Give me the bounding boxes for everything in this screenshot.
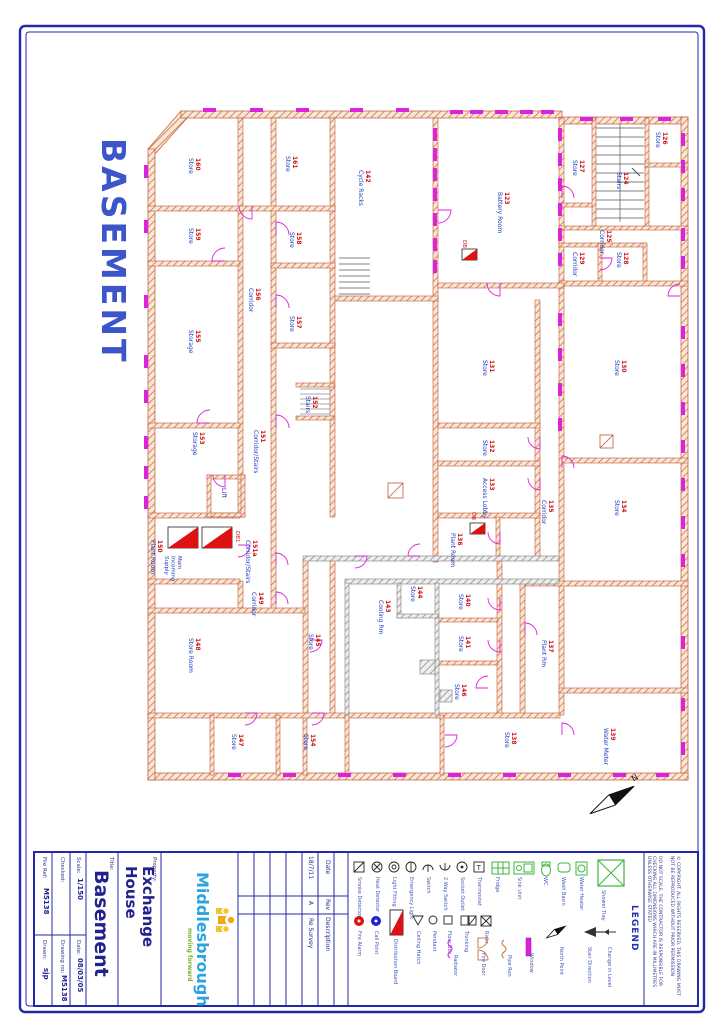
door-swing [438, 210, 451, 223]
window-marker [228, 773, 241, 777]
stairs-centre [339, 258, 370, 294]
room-label: 151Corridor/Stairs [252, 430, 266, 473]
svg-text:Switch: Switch [425, 877, 431, 894]
svg-text:145: 145 [314, 634, 321, 647]
room-label: 126Store [654, 132, 668, 148]
svg-text:T: T [476, 864, 482, 872]
svg-text:Stairs: Stairs [304, 396, 311, 413]
legend-item-circ-o: Light Fitting [389, 862, 399, 907]
window-marker [203, 108, 216, 112]
window-marker [144, 436, 148, 449]
svg-text:North Point: North Point [558, 947, 564, 975]
door-swing [562, 723, 574, 735]
window-marker [144, 355, 148, 368]
svg-text:Shower Tray: Shower Tray [600, 890, 606, 921]
property-name: Exchange House [123, 866, 156, 958]
window-marker [656, 773, 669, 777]
svg-text:149: 149 [257, 592, 264, 605]
room-label: 152Stairs [304, 396, 318, 413]
window-marker [681, 133, 685, 146]
window-marker [144, 466, 148, 479]
svg-text:Corridor: Corridor [250, 592, 257, 617]
svg-text:Corridor: Corridor [540, 500, 547, 525]
svg-text:150: 150 [156, 540, 163, 553]
svg-text:136: 136 [456, 533, 463, 546]
date-label: Date: [75, 940, 81, 955]
room-label: 137Plant Rm [540, 640, 554, 667]
legend-item-dot-red: Fire Alarm [354, 916, 364, 956]
window-marker [433, 188, 437, 201]
room-label: 159Store [187, 228, 201, 244]
window-marker [681, 402, 685, 415]
svg-text:156: 156 [254, 288, 261, 301]
svg-text:Fridge: Fridge [494, 877, 500, 892]
room-label: 132Store [481, 440, 495, 456]
svg-text:147: 147 [237, 734, 244, 747]
svg-text:Smoke Detector: Smoke Detector [356, 877, 362, 918]
room-label: 139Water Meter [602, 728, 616, 766]
svg-text:Ceiling Hatch: Ceiling Hatch [415, 931, 421, 964]
window-marker [558, 313, 562, 326]
door-swing [276, 415, 289, 428]
window-marker [393, 773, 406, 777]
drawn-label: Drawn: [41, 940, 47, 960]
legend-item-sq-sm: Floor Box [444, 916, 452, 954]
window-marker [470, 110, 483, 114]
svg-text:157: 157 [295, 316, 302, 329]
svg-text:Corridor: Corridor [571, 252, 578, 277]
room-label: 127Store [571, 160, 585, 176]
svg-text:Main: Main [176, 556, 182, 570]
svg-text:Cooling Rm: Cooling Rm [377, 600, 384, 635]
window-marker [558, 228, 562, 241]
svg-text:133: 133 [488, 478, 495, 491]
legend-item-door-o: Fire Door [478, 938, 488, 976]
legend-item-squig-o: Pipe Run [502, 940, 512, 977]
window-marker [681, 554, 685, 567]
room-label: 130Store [613, 360, 627, 376]
svg-text:146: 146 [460, 684, 467, 697]
window-marker [495, 110, 508, 114]
walls-external [148, 111, 688, 780]
svg-text:132: 132 [488, 440, 495, 453]
svg-text:Store: Store [571, 160, 578, 176]
room-label: 155Storage [187, 330, 201, 354]
svg-text:DB1: DB1 [234, 531, 240, 543]
svg-text:151a: 151a [251, 540, 258, 557]
window-marker [620, 117, 633, 121]
window-marker [144, 165, 148, 178]
svg-text:Access Lobby: Access Lobby [481, 478, 488, 519]
do-not-scale-note: DO NOT SCALE. THE CONTRACTOR IS RESPONSI… [645, 856, 662, 1002]
svg-text:152: 152 [311, 396, 318, 409]
svg-text:Store: Store [457, 636, 464, 652]
legend-item-circ-o2: Emergency Light [406, 862, 416, 919]
svg-text:Plant Room: Plant Room [449, 533, 456, 567]
window-marker [338, 773, 351, 777]
svg-text:Sink Unit: Sink Unit [516, 877, 522, 899]
scale-value: 1/150 [76, 878, 84, 900]
svg-text:Store: Store [288, 316, 295, 332]
revision-rev: A [307, 901, 314, 905]
window-marker [681, 256, 685, 269]
svg-text:Store: Store [481, 440, 488, 456]
svg-text:Light Fitting: Light Fitting [391, 877, 397, 907]
svg-text:Store Room: Store Room [187, 638, 194, 673]
window-marker [681, 160, 685, 173]
svg-text:Corridor/Stairs: Corridor/Stairs [244, 540, 251, 583]
legend-item-db-tri: Distribution Board [390, 910, 403, 984]
plan-annotation: MainIncomingSupply [163, 556, 182, 581]
drawing-no-value: M5138 [60, 975, 68, 1001]
legend-item-wc-green: WC [542, 862, 551, 886]
svg-text:Corridor: Corridor [598, 230, 605, 255]
window-marker [558, 153, 562, 166]
window-marker [681, 326, 685, 339]
window-marker [681, 440, 685, 453]
window-marker [450, 110, 463, 114]
middlesbrough-logo-icon [216, 908, 234, 932]
svg-text:144: 144 [416, 586, 423, 599]
door-swing [408, 544, 420, 556]
svg-text:Store: Store [187, 228, 194, 244]
hatch-box-icon [388, 435, 613, 498]
svg-text:Store: Store [654, 132, 661, 148]
svg-text:Store: Store [288, 232, 295, 248]
legend-item-semi: Switch [423, 865, 433, 894]
svg-text:Wash Basin: Wash Basin [560, 877, 566, 906]
window-marker [433, 238, 437, 251]
svg-text:140: 140 [464, 594, 471, 607]
window-marker [558, 203, 562, 216]
window-marker [144, 295, 148, 308]
svg-text:Window: Window [528, 953, 534, 973]
revision-date: 18/7/11 [307, 856, 314, 879]
door-swing [276, 295, 289, 308]
svg-text:Storage: Storage [191, 432, 198, 456]
svg-text:155: 155 [194, 330, 201, 343]
svg-text:Fire Door: Fire Door [480, 953, 486, 976]
window-marker [350, 108, 363, 112]
window-marker [541, 110, 554, 114]
legend-title: LEGEND [629, 905, 639, 951]
svg-text:135: 135 [547, 500, 554, 513]
svg-text:153: 153 [198, 432, 205, 445]
svg-text:Radiator: Radiator [452, 955, 458, 977]
legend-item-sq-x: Riser [481, 916, 491, 945]
svg-text:Store: Store [457, 594, 464, 610]
svg-text:158: 158 [295, 232, 302, 245]
room-label: 142Cycle Racks [357, 170, 371, 206]
window-marker [681, 228, 685, 241]
room-label: 124Stairs [615, 172, 629, 189]
legend-item-tri-o: Ceiling Hatch [413, 916, 423, 964]
svg-text:WC: WC [542, 877, 548, 886]
svg-text:2 Way Switch: 2 Way Switch [442, 877, 448, 911]
window-marker [558, 773, 571, 777]
window-marker [681, 636, 685, 649]
revision-date-header: Date [324, 860, 331, 874]
door-swing [476, 676, 488, 688]
svg-text:DB: DB [461, 240, 467, 248]
svg-text:Water Heater: Water Heater [578, 877, 584, 911]
window-marker [144, 390, 148, 403]
window-marker [558, 383, 562, 396]
room-label: 123Battery Room [496, 192, 510, 233]
svg-text:Corridor/Stairs: Corridor/Stairs [252, 430, 259, 473]
window-marker [144, 220, 148, 233]
svg-text:142: 142 [364, 170, 371, 183]
svg-text:Change in Level: Change in Level [606, 947, 612, 987]
drawing-no-label: Drawing no: [59, 940, 65, 973]
svg-text:Incoming: Incoming [170, 556, 176, 581]
window-marker [433, 148, 437, 161]
window-marker [520, 110, 533, 114]
svg-text:127: 127 [578, 160, 585, 173]
window-marker [433, 128, 437, 141]
room-label: 140Store [457, 594, 471, 610]
svg-text:141: 141 [464, 636, 471, 649]
svg-text:151: 151 [259, 430, 266, 443]
walls-internal [148, 118, 688, 775]
svg-text:Plant Rm: Plant Rm [540, 640, 547, 667]
door-swing [212, 248, 225, 261]
window-marker [681, 698, 685, 711]
svg-text:DB: DB [470, 512, 476, 520]
svg-text:Corridor: Corridor [247, 288, 254, 313]
legend-item-grid-green: Fridge [492, 862, 509, 892]
legend-item-boiler-green: Water Heater [576, 862, 587, 911]
window-marker [433, 213, 437, 226]
room-label: 141Store [457, 636, 471, 652]
window-marker [283, 773, 296, 777]
room-label: 143Cooling Rm [377, 600, 391, 635]
plan-annotation: DB [470, 512, 476, 520]
window-marker [681, 188, 685, 201]
door-swing [197, 410, 210, 423]
svg-text:Store: Store [230, 734, 237, 750]
room-label: 153Storage [191, 432, 205, 456]
svg-text:130: 130 [620, 360, 627, 373]
door-swing [276, 553, 288, 565]
svg-text:124: 124 [622, 172, 629, 185]
svg-text:139: 139 [609, 728, 616, 741]
svg-text:Store: Store [284, 156, 291, 172]
svg-text:Socket Outlet: Socket Outlet [459, 877, 465, 911]
legend-item-arrow-s: Change in Level [604, 929, 616, 987]
svg-text:Thermostat: Thermostat [476, 876, 482, 906]
room-label: 131Store [481, 360, 495, 376]
legend-item-circ-x: Heat Detector [372, 862, 382, 913]
svg-text:148: 148 [194, 638, 201, 651]
legend-item-shower-green: Shower Tray [598, 860, 624, 921]
room-label: 150Plant Room [149, 540, 163, 574]
svg-text:Pendant: Pendant [431, 931, 437, 951]
door-swing [525, 623, 537, 635]
svg-text:Stair Direction: Stair Direction [586, 947, 592, 983]
room-label: 129Corridor [571, 252, 585, 277]
svg-text:160: 160 [194, 158, 201, 171]
room-label: 147Store [230, 734, 244, 750]
window-marker [558, 418, 562, 431]
distribution-board-symbol [470, 523, 485, 534]
svg-text:129: 129 [578, 252, 585, 265]
legend-item-sq-t: TThermostat [474, 862, 484, 906]
svg-text:Distribution Board: Distribution Board [392, 939, 398, 984]
legend-item-semi2: 2 Way Switch [440, 863, 450, 911]
svg-text:Battery Room: Battery Room [496, 192, 503, 233]
svg-text:Store: Store [409, 586, 416, 602]
legend-item-dot-blue: Call Point [371, 916, 381, 954]
window-marker [681, 516, 685, 529]
svg-text:Call Point: Call Point [373, 931, 379, 954]
legend-item-sq-diag: Smoke Detector [354, 862, 364, 918]
svg-text:Plant Room: Plant Room [149, 540, 156, 574]
distribution-board-symbol [168, 527, 198, 548]
title-label: Title: [108, 857, 114, 871]
window-marker [558, 178, 562, 191]
plan-annotation: DB1 [234, 531, 240, 543]
window-marker [658, 117, 671, 121]
plan-annotation: Lift [220, 488, 228, 499]
svg-text:126: 126 [661, 132, 668, 145]
file-ref-label: File Ref: [41, 857, 47, 879]
svg-text:Store: Store [187, 158, 194, 174]
window-marker [448, 773, 461, 777]
revision-desc-header: Description [324, 917, 331, 951]
window-marker [558, 253, 562, 266]
window-marker [296, 108, 309, 112]
room-label: 128Store [615, 252, 629, 268]
room-label: 135Corridor [540, 500, 554, 525]
sheet-side-title: BASEMENT [94, 138, 133, 365]
distribution-board-symbol [462, 249, 477, 260]
legend-item-basin-green: Wash Basin [558, 863, 570, 906]
svg-text:128: 128 [622, 252, 629, 265]
scale-label: Scale: [75, 857, 81, 874]
drawing-sheet: 160Store161Store142Cycle Racks123Battery… [0, 0, 724, 1024]
checked-label: Checked: [59, 857, 65, 882]
svg-text:131: 131 [488, 360, 495, 373]
legend-symbols-layer: Smoke DetectorHeat DetectorLight Fitting… [354, 860, 624, 987]
logo-name: Middlesbrough [193, 872, 212, 1007]
file-ref-value: M5138 [42, 888, 50, 914]
window-marker [681, 364, 685, 377]
window-marker [433, 260, 437, 273]
room-label: 161Store [284, 156, 298, 172]
legend-item-circ-dot: Socket Outlet [457, 862, 467, 911]
svg-text:Fire Alarm: Fire Alarm [356, 931, 362, 956]
svg-text:Store: Store [503, 732, 510, 748]
svg-text:Store: Store [481, 360, 488, 376]
legend-item-north-sm: North Point [545, 924, 567, 975]
svg-text:Store: Store [453, 684, 460, 700]
svg-text:134: 134 [620, 500, 627, 513]
date-value: 08/03/05 [76, 958, 84, 992]
room-label: 148Store Room [187, 638, 201, 673]
window-marker [558, 128, 562, 141]
svg-text:Heat Detector: Heat Detector [374, 877, 380, 913]
room-label: 151aCorridor/Stairs [244, 540, 258, 583]
svg-text:Store: Store [613, 360, 620, 376]
svg-text:138: 138 [510, 732, 517, 745]
revision-rev-header: Rev [324, 899, 331, 910]
logo-tagline: moving forward [186, 928, 193, 982]
svg-text:Lift: Lift [220, 488, 228, 499]
svg-text:Store: Store [302, 734, 309, 750]
window-marker [681, 478, 685, 491]
svg-text:Storage: Storage [187, 330, 194, 354]
svg-text:Store: Store [613, 500, 620, 516]
svg-text:137: 137 [547, 640, 554, 653]
legend-item-bar-m: Window [526, 938, 534, 973]
svg-text:143: 143 [384, 600, 391, 613]
room-label: 144Store [409, 586, 423, 602]
svg-text:Store: Store [615, 252, 622, 268]
room-label: 156Corridor [247, 288, 261, 313]
window-marker [144, 496, 148, 509]
svg-text:Stairs: Stairs [615, 172, 622, 189]
plan-annotation: DB [461, 240, 467, 248]
room-label: 154Store [302, 734, 316, 750]
svg-text:Pipe Run: Pipe Run [506, 955, 512, 977]
svg-text:159: 159 [194, 228, 201, 241]
copyright-note: © COPYRIGHT. ALL RIGHTS RESERVED. THIS D… [669, 856, 680, 1002]
svg-text:Emergency Light: Emergency Light [408, 877, 414, 919]
room-label: 125Corridor [598, 230, 612, 255]
room-label: 138Store [503, 732, 517, 748]
distribution-board-symbol [202, 527, 232, 548]
room-label: 160Store [187, 158, 201, 174]
window-marker [681, 742, 685, 755]
svg-text:123: 123 [503, 192, 510, 205]
svg-text:Supply: Supply [163, 556, 169, 575]
window-marker [580, 117, 593, 121]
drawn-value: sjp [42, 968, 50, 980]
door-swing [276, 592, 288, 604]
room-label: 158Store [288, 232, 302, 248]
room-label: 134Store [613, 500, 627, 516]
svg-text:Water Meter: Water Meter [602, 728, 609, 766]
window-marker [503, 773, 516, 777]
legend-item-circ-sm: Pendant [429, 916, 437, 951]
legend-item-sink-green: Sink Unit [514, 862, 534, 899]
window-marker [558, 348, 562, 361]
svg-text:Cycle Racks: Cycle Racks [357, 170, 364, 206]
door-swing [445, 735, 457, 747]
drawing-title: Basement [90, 870, 112, 977]
legend-item-arrow-f: Stair Direction [584, 927, 604, 983]
window-marker [250, 108, 263, 112]
window-marker [396, 108, 409, 112]
revision-desc: Re Survey [307, 918, 314, 948]
window-marker [613, 773, 626, 777]
svg-text:161: 161 [291, 156, 298, 169]
room-label: 136Plant Room [449, 533, 463, 567]
window-marker [433, 168, 437, 181]
legend-item-sq-pair: Trunking [461, 916, 476, 952]
legend-item-squig-m: Radiator [448, 940, 458, 977]
svg-text:Trunking: Trunking [463, 930, 469, 952]
svg-text:125: 125 [605, 230, 612, 243]
svg-text:154: 154 [309, 734, 316, 747]
svg-text:Store: Store [307, 634, 314, 650]
room-label: 146Store [453, 684, 467, 700]
room-label: 157Store [288, 316, 302, 332]
door-swing [276, 222, 289, 235]
